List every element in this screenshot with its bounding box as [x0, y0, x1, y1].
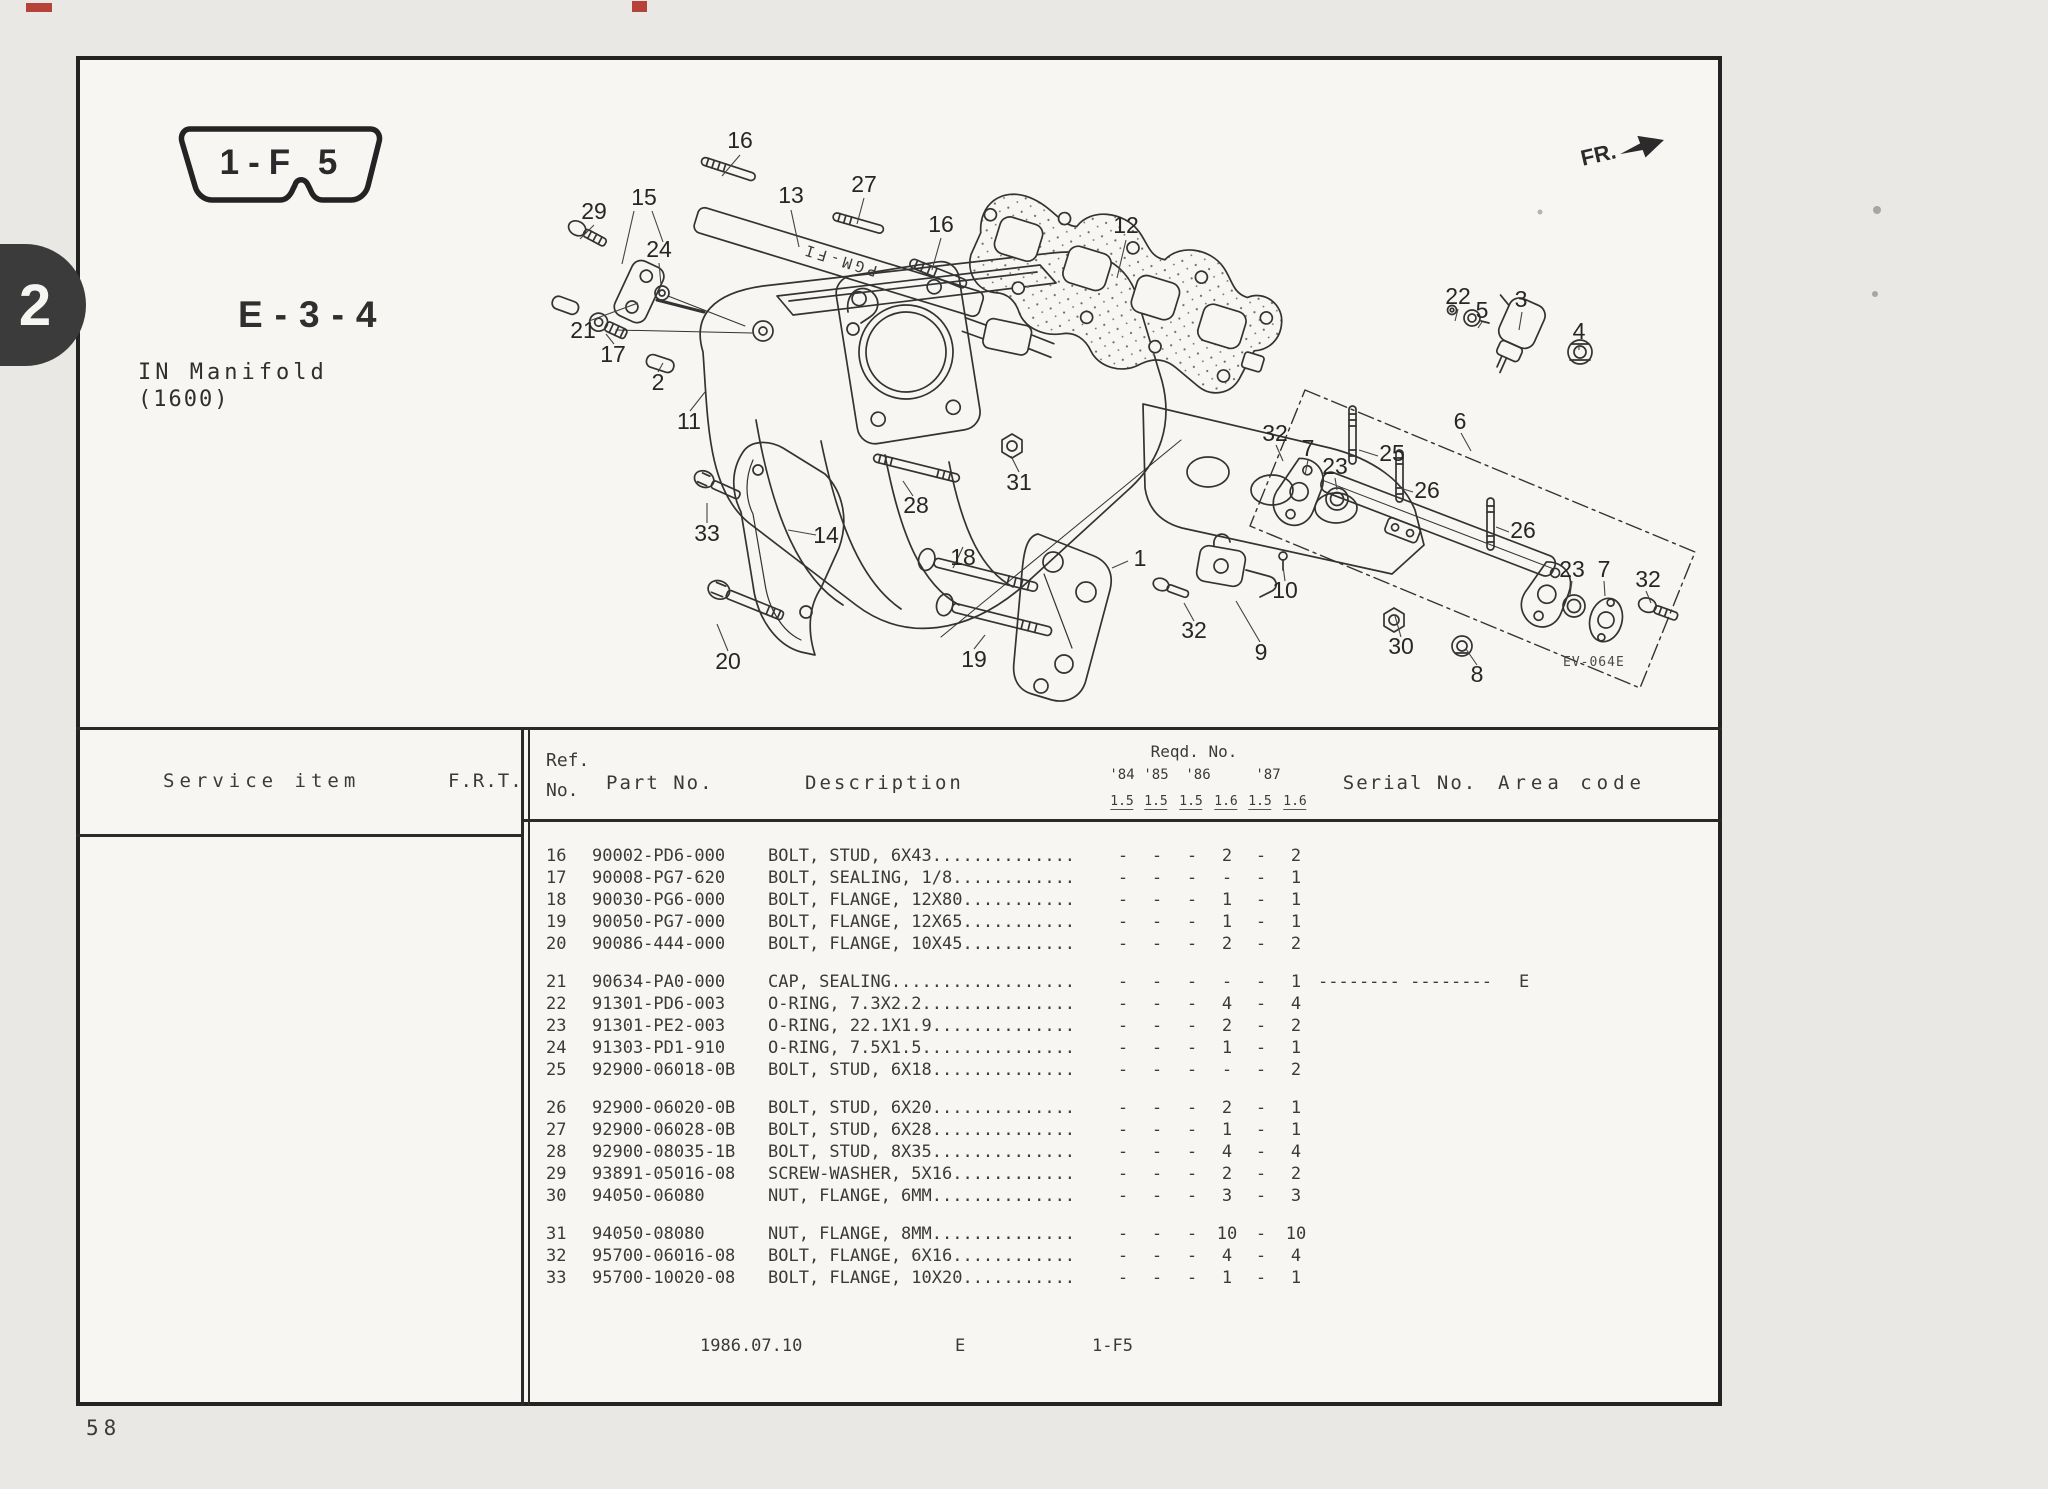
cell-qty: -	[1139, 1098, 1175, 1118]
table-row: 2592900-06018-0BBOLT, STUD, 6X18........…	[0, 1060, 1722, 1082]
cell-qty: -	[1105, 1120, 1141, 1140]
cell-ref: 24	[546, 1038, 566, 1058]
cell-qty: -	[1174, 972, 1210, 992]
cell-ref: 22	[546, 994, 566, 1014]
cell-qty: -	[1139, 1224, 1175, 1244]
cell-qty: -	[1243, 1268, 1279, 1288]
table-row: 2491303-PD1-910O-RING, 7.5X1.5..........…	[0, 1038, 1722, 1060]
cell-qty: -	[1139, 912, 1175, 932]
cell-qty: 1	[1278, 1120, 1314, 1140]
cell-qty: -	[1105, 1142, 1141, 1162]
cell-ref: 25	[546, 1060, 566, 1080]
cell-qty: -	[1243, 1098, 1279, 1118]
cell-description: SCREW-WASHER, 5X16............	[768, 1164, 1075, 1184]
col-eng-2: 1.5	[1144, 794, 1167, 810]
cell-qty: 4	[1209, 1246, 1245, 1266]
cell-description: BOLT, FLANGE, 12X80...........	[768, 890, 1075, 910]
table-rows: 1690002-PD6-000BOLT, STUD, 6X43.........…	[0, 846, 1722, 1290]
callout-6: 6	[1454, 408, 1467, 435]
footer-frame-ref: 1-F5	[1092, 1336, 1133, 1356]
cell-part-no: 95700-06016-08	[592, 1246, 735, 1266]
col-service-item: Service item	[163, 770, 360, 792]
table-row: 2090086-444-000BOLT, FLANGE, 10X45......…	[0, 934, 1722, 956]
cell-qty: -	[1243, 912, 1279, 932]
cell-qty: -	[1174, 868, 1210, 888]
cell-qty: 2	[1278, 1016, 1314, 1036]
col-reqd-no: Reqd. No.	[1151, 742, 1238, 761]
col-serial-no: Serial No.	[1343, 772, 1477, 794]
col-eng-5: 1.5	[1248, 794, 1271, 810]
cell-qty: -	[1174, 1224, 1210, 1244]
cell-qty: -	[1105, 890, 1141, 910]
cell-ref: 33	[546, 1268, 566, 1288]
cell-part-no: 93891-05016-08	[592, 1164, 735, 1184]
cell-qty: -	[1174, 994, 1210, 1014]
table-top-rule	[76, 727, 1722, 730]
col-ref-1: Ref.	[546, 750, 589, 771]
table-row: 2391301-PE2-003O-RING, 22.1X1.9.........…	[0, 1016, 1722, 1038]
callout-3: 3	[1515, 286, 1528, 313]
callout-26: 26	[1414, 477, 1440, 504]
table-row: 3194050-08080NUT, FLANGE, 8MM...........…	[0, 1224, 1722, 1246]
cell-part-no: 92900-06028-0B	[592, 1120, 735, 1140]
table-row: 1890030-PG6-000BOLT, FLANGE, 12X80......…	[0, 890, 1722, 912]
cell-qty: 3	[1209, 1186, 1245, 1206]
cell-qty: -	[1105, 1098, 1141, 1118]
callout-2: 2	[652, 369, 665, 396]
table-row: 2692900-06020-0BBOLT, STUD, 6X20........…	[0, 1098, 1722, 1120]
callout-8: 8	[1471, 661, 1484, 688]
cell-qty: -	[1243, 1186, 1279, 1206]
table-row: 3094050-06080NUT, FLANGE, 6MM...........…	[0, 1186, 1722, 1208]
cell-qty: 2	[1209, 846, 1245, 866]
col-year-85: '85	[1143, 767, 1168, 783]
cell-qty: -	[1243, 1060, 1279, 1080]
cell-qty: -	[1243, 1016, 1279, 1036]
cell-description: BOLT, FLANGE, 10X20...........	[768, 1268, 1075, 1288]
col-ref-2: No.	[546, 780, 579, 801]
callout-22: 22	[1445, 283, 1471, 310]
cell-qty: -	[1139, 1142, 1175, 1162]
cell-qty: -	[1105, 1186, 1141, 1206]
cell-part-no: 95700-10020-08	[592, 1268, 735, 1288]
col-eng-1: 1.5	[1110, 794, 1133, 810]
table-row: 1790008-PG7-620BOLT, SEALING, 1/8.......…	[0, 868, 1722, 890]
callout-11: 11	[677, 408, 701, 435]
cell-description: BOLT, STUD, 6X28..............	[768, 1120, 1075, 1140]
catalog-page: 2 1-F 5 E-3-4 IN Manifold (1600) FR.	[0, 0, 2048, 1489]
cell-qty: -	[1174, 1164, 1210, 1184]
callout-12: 12	[1113, 212, 1139, 239]
cell-qty: -	[1139, 890, 1175, 910]
callout-29: 29	[581, 198, 607, 225]
cell-qty: -	[1139, 846, 1175, 866]
table-row: 2291301-PD6-003O-RING, 7.3X2.2..........…	[0, 994, 1722, 1016]
callout-4: 4	[1573, 318, 1586, 345]
cell-qty: -	[1105, 1038, 1141, 1058]
cell-part-no: 91301-PE2-003	[592, 1016, 725, 1036]
cell-qty: 1	[1278, 890, 1314, 910]
callout-17: 17	[600, 341, 626, 368]
cell-qty: 4	[1278, 1246, 1314, 1266]
cell-qty: -	[1174, 1186, 1210, 1206]
cell-qty: 2	[1209, 934, 1245, 954]
cell-ref: 26	[546, 1098, 566, 1118]
cell-qty: 3	[1278, 1186, 1314, 1206]
cell-qty: -	[1139, 934, 1175, 954]
table-row: 2993891-05016-08SCREW-WASHER, 5X16......…	[0, 1164, 1722, 1186]
cell-qty: -	[1139, 868, 1175, 888]
callout-14: 14	[813, 522, 839, 549]
cell-qty: 1	[1209, 1120, 1245, 1140]
cell-qty: -	[1243, 1246, 1279, 1266]
cell-ref: 30	[546, 1186, 566, 1206]
cell-description: BOLT, STUD, 8X35..............	[768, 1142, 1075, 1162]
cell-part-no: 90002-PD6-000	[592, 846, 725, 866]
cell-qty: 10	[1209, 1224, 1245, 1244]
cell-qty: -	[1105, 1224, 1141, 1244]
table-row: 2892900-08035-1BBOLT, STUD, 8X35........…	[0, 1142, 1722, 1164]
cell-qty: 4	[1278, 994, 1314, 1014]
table-row: 2792900-06028-0BBOLT, STUD, 6X28........…	[0, 1120, 1722, 1142]
callout-24: 24	[646, 236, 672, 263]
table-row: 1690002-PD6-000BOLT, STUD, 6X43.........…	[0, 846, 1722, 868]
cell-qty: -	[1243, 972, 1279, 992]
cell-description: BOLT, STUD, 6X43..............	[768, 846, 1075, 866]
cell-qty: 1	[1278, 912, 1314, 932]
col-area-code: Area code	[1498, 772, 1646, 794]
col-year-84: '84	[1109, 767, 1134, 783]
cell-qty: -	[1243, 1120, 1279, 1140]
cell-description: BOLT, FLANGE, 10X45...........	[768, 934, 1075, 954]
cell-area-code: E	[1519, 972, 1529, 992]
cell-qty: 4	[1209, 994, 1245, 1014]
cell-description: BOLT, FLANGE, 12X65...........	[768, 912, 1075, 932]
table-row: 1990050-PG7-000BOLT, FLANGE, 12X65......…	[0, 912, 1722, 934]
cell-part-no: 94050-06080	[592, 1186, 705, 1206]
cell-qty: -	[1174, 1016, 1210, 1036]
cell-qty: -	[1105, 994, 1141, 1014]
col-part-no: Part No.	[606, 772, 714, 794]
callout-1: 1	[1134, 545, 1147, 572]
callout-16: 16	[928, 211, 954, 238]
callout-30: 30	[1388, 633, 1414, 660]
callout-16: 16	[727, 127, 753, 154]
cell-part-no: 91303-PD1-910	[592, 1038, 725, 1058]
cell-qty: 1	[1278, 1038, 1314, 1058]
callout-32: 32	[1181, 617, 1207, 644]
callout-28: 28	[903, 492, 929, 519]
cell-qty: -	[1105, 972, 1141, 992]
callout-27: 27	[851, 171, 877, 198]
col-year-87: '87	[1255, 767, 1280, 783]
table-header-rule-left	[76, 834, 524, 837]
cell-qty: -	[1174, 912, 1210, 932]
col-eng-6: 1.6	[1283, 794, 1306, 810]
cell-qty: -	[1105, 1164, 1141, 1184]
cell-qty: 1	[1209, 890, 1245, 910]
cell-ref: 28	[546, 1142, 566, 1162]
footer-section: E	[955, 1336, 965, 1356]
table-header-rule-right	[524, 819, 1722, 822]
callout-10: 10	[1272, 577, 1298, 604]
cell-qty: -	[1174, 934, 1210, 954]
cell-serial-no: -------- --------	[1318, 972, 1492, 992]
col-year-86: '86	[1185, 767, 1210, 783]
cell-qty: -	[1105, 1268, 1141, 1288]
cell-qty: -	[1105, 868, 1141, 888]
cell-qty: 1	[1278, 1268, 1314, 1288]
cell-qty: -	[1174, 1268, 1210, 1288]
callout-33: 33	[694, 520, 720, 547]
callout-9: 9	[1255, 639, 1268, 666]
callout-23: 23	[1322, 453, 1348, 480]
diagram-code: EV-064E	[1563, 655, 1625, 670]
cell-ref: 19	[546, 912, 566, 932]
cell-ref: 20	[546, 934, 566, 954]
cell-description: NUT, FLANGE, 6MM..............	[768, 1186, 1075, 1206]
callout-15: 15	[631, 184, 657, 211]
cell-qty: 2	[1278, 846, 1314, 866]
cell-ref: 27	[546, 1120, 566, 1140]
col-description: Description	[805, 772, 964, 794]
cell-part-no: 92900-06018-0B	[592, 1060, 735, 1080]
cell-qty: -	[1139, 1038, 1175, 1058]
cell-qty: 10	[1278, 1224, 1314, 1244]
cell-qty: -	[1139, 1060, 1175, 1080]
cell-ref: 23	[546, 1016, 566, 1036]
cell-qty: -	[1209, 1060, 1245, 1080]
cell-qty: -	[1243, 1038, 1279, 1058]
cell-qty: 1	[1278, 972, 1314, 992]
cell-qty: -	[1139, 1120, 1175, 1140]
cell-qty: -	[1209, 972, 1245, 992]
table-row: 3395700-10020-08BOLT, FLANGE, 10X20.....…	[0, 1268, 1722, 1290]
cell-qty: -	[1105, 1016, 1141, 1036]
cell-qty: -	[1174, 846, 1210, 866]
cell-qty: -	[1139, 1246, 1175, 1266]
diagram-callouts: 1613271612291524211721133142831181912032…	[0, 0, 2048, 745]
cell-qty: -	[1174, 1246, 1210, 1266]
cell-qty: -	[1243, 846, 1279, 866]
callout-13: 13	[778, 182, 804, 209]
cell-qty: -	[1243, 1164, 1279, 1184]
callout-31: 31	[1006, 469, 1032, 496]
cell-qty: 1	[1278, 868, 1314, 888]
cell-ref: 21	[546, 972, 566, 992]
cell-qty: 2	[1209, 1098, 1245, 1118]
cell-description: NUT, FLANGE, 8MM..............	[768, 1224, 1075, 1244]
col-eng-4: 1.6	[1214, 794, 1237, 810]
cell-qty: 2	[1209, 1164, 1245, 1184]
cell-qty: -	[1174, 890, 1210, 910]
callout-26: 26	[1510, 517, 1536, 544]
cell-qty: -	[1174, 1038, 1210, 1058]
cell-description: BOLT, FLANGE, 6X16............	[768, 1246, 1075, 1266]
cell-description: BOLT, STUD, 6X18..............	[768, 1060, 1075, 1080]
cell-ref: 17	[546, 868, 566, 888]
cell-qty: 4	[1209, 1142, 1245, 1162]
cell-part-no: 92900-06020-0B	[592, 1098, 735, 1118]
cell-qty: -	[1174, 1142, 1210, 1162]
cell-description: O-RING, 22.1X1.9..............	[768, 1016, 1075, 1036]
cell-qty: -	[1243, 890, 1279, 910]
callout-5: 5	[1476, 297, 1489, 324]
cell-ref: 16	[546, 846, 566, 866]
cell-part-no: 94050-08080	[592, 1224, 705, 1244]
cell-qty: 2	[1278, 934, 1314, 954]
cell-qty: -	[1243, 994, 1279, 1014]
cell-ref: 32	[546, 1246, 566, 1266]
cell-qty: -	[1174, 1120, 1210, 1140]
callout-25: 25	[1379, 440, 1405, 467]
cell-description: O-RING, 7.3X2.2...............	[768, 994, 1075, 1014]
cell-qty: -	[1243, 934, 1279, 954]
cell-qty: -	[1105, 934, 1141, 954]
cell-qty: -	[1105, 912, 1141, 932]
cell-part-no: 90634-PA0-000	[592, 972, 725, 992]
cell-qty: 1	[1278, 1098, 1314, 1118]
callout-32: 32	[1635, 566, 1661, 593]
cell-description: O-RING, 7.5X1.5...............	[768, 1038, 1075, 1058]
cell-qty: 2	[1278, 1060, 1314, 1080]
cell-ref: 18	[546, 890, 566, 910]
cell-part-no: 91301-PD6-003	[592, 994, 725, 1014]
cell-qty: -	[1139, 1164, 1175, 1184]
table-row: 2190634-PA0-000CAP, SEALING.............…	[0, 972, 1722, 994]
cell-ref: 31	[546, 1224, 566, 1244]
cell-part-no: 90008-PG7-620	[592, 868, 725, 888]
cell-qty: -	[1174, 1098, 1210, 1118]
col-frt: F.R.T.	[448, 770, 523, 792]
callout-19: 19	[961, 646, 987, 673]
callout-7: 7	[1598, 556, 1611, 583]
cell-qty: -	[1105, 1060, 1141, 1080]
cell-part-no: 92900-08035-1B	[592, 1142, 735, 1162]
cell-qty: 2	[1278, 1164, 1314, 1184]
col-eng-3: 1.5	[1179, 794, 1202, 810]
cell-qty: -	[1139, 1186, 1175, 1206]
callout-7: 7	[1302, 435, 1315, 462]
cell-qty: -	[1243, 1142, 1279, 1162]
cell-description: CAP, SEALING..................	[768, 972, 1075, 992]
footer-date: 1986.07.10	[700, 1336, 802, 1356]
cell-qty: -	[1139, 972, 1175, 992]
cell-qty: 1	[1209, 912, 1245, 932]
cell-part-no: 90030-PG6-000	[592, 890, 725, 910]
table-row: 3295700-06016-08BOLT, FLANGE, 6X16......…	[0, 1246, 1722, 1268]
cell-description: BOLT, SEALING, 1/8............	[768, 868, 1075, 888]
cell-qty: 2	[1209, 1016, 1245, 1036]
cell-qty: -	[1209, 868, 1245, 888]
cell-qty: 1	[1209, 1038, 1245, 1058]
cell-qty: 1	[1209, 1268, 1245, 1288]
callout-23: 23	[1559, 556, 1585, 583]
cell-qty: -	[1105, 846, 1141, 866]
cell-qty: -	[1243, 1224, 1279, 1244]
callout-32: 32	[1262, 420, 1288, 447]
cell-description: BOLT, STUD, 6X20..............	[768, 1098, 1075, 1118]
cell-qty: -	[1139, 1268, 1175, 1288]
cell-qty: -	[1174, 1060, 1210, 1080]
cell-qty: -	[1105, 1246, 1141, 1266]
cell-qty: -	[1139, 994, 1175, 1014]
cell-qty: 4	[1278, 1142, 1314, 1162]
callout-20: 20	[715, 648, 741, 675]
cell-qty: -	[1243, 868, 1279, 888]
callout-18: 18	[950, 544, 976, 571]
cell-part-no: 90086-444-000	[592, 934, 725, 954]
cell-qty: -	[1139, 1016, 1175, 1036]
cell-part-no: 90050-PG7-000	[592, 912, 725, 932]
callout-21: 21	[570, 317, 596, 344]
page-number: 58	[86, 1416, 121, 1440]
cell-ref: 29	[546, 1164, 566, 1184]
